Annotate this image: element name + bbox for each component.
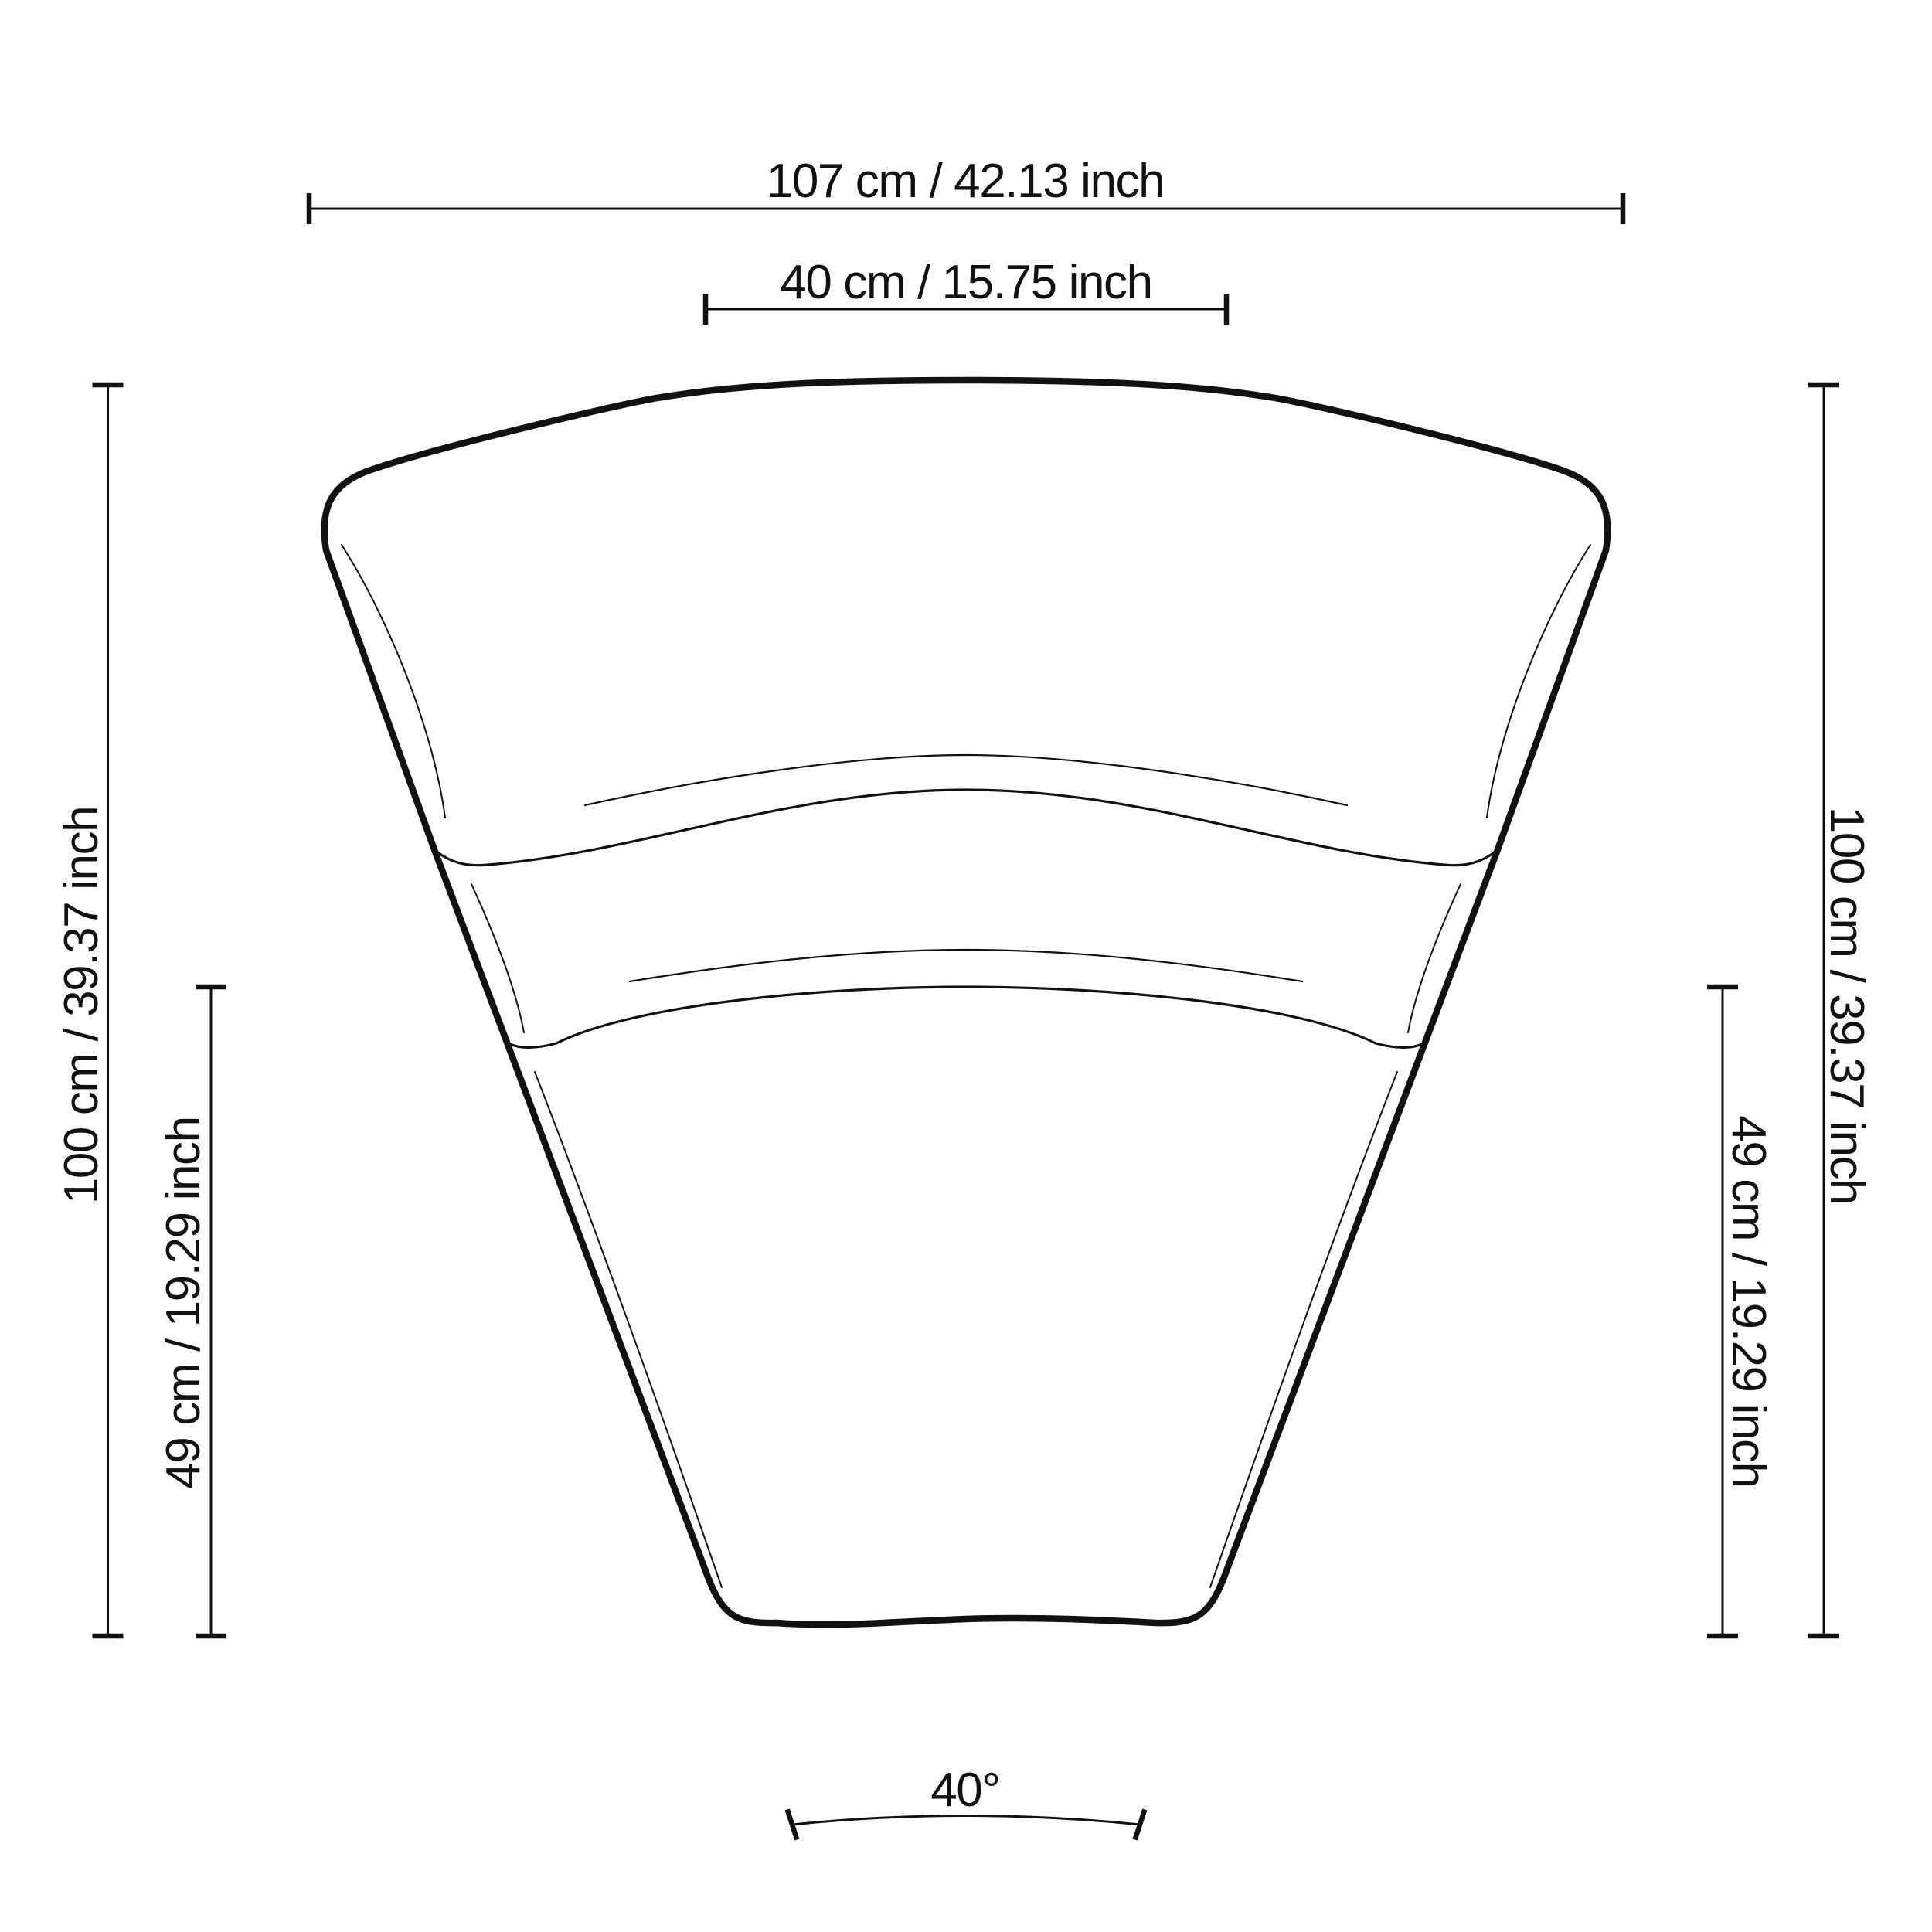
svg-text:40°: 40° (930, 1764, 1000, 1817)
svg-text:49 cm / 19.29 inch: 49 cm / 19.29 inch (1722, 1115, 1775, 1487)
svg-text:100 cm / 39.37 inch: 100 cm / 39.37 inch (1820, 807, 1873, 1205)
svg-text:100 cm / 39.37 inch: 100 cm / 39.37 inch (55, 807, 108, 1205)
svg-text:107 cm / 42.13 inch: 107 cm / 42.13 inch (767, 155, 1165, 208)
svg-text:49 cm / 19.29 inch: 49 cm / 19.29 inch (157, 1117, 210, 1488)
svg-text:40 cm / 15.75 inch: 40 cm / 15.75 inch (780, 256, 1151, 309)
